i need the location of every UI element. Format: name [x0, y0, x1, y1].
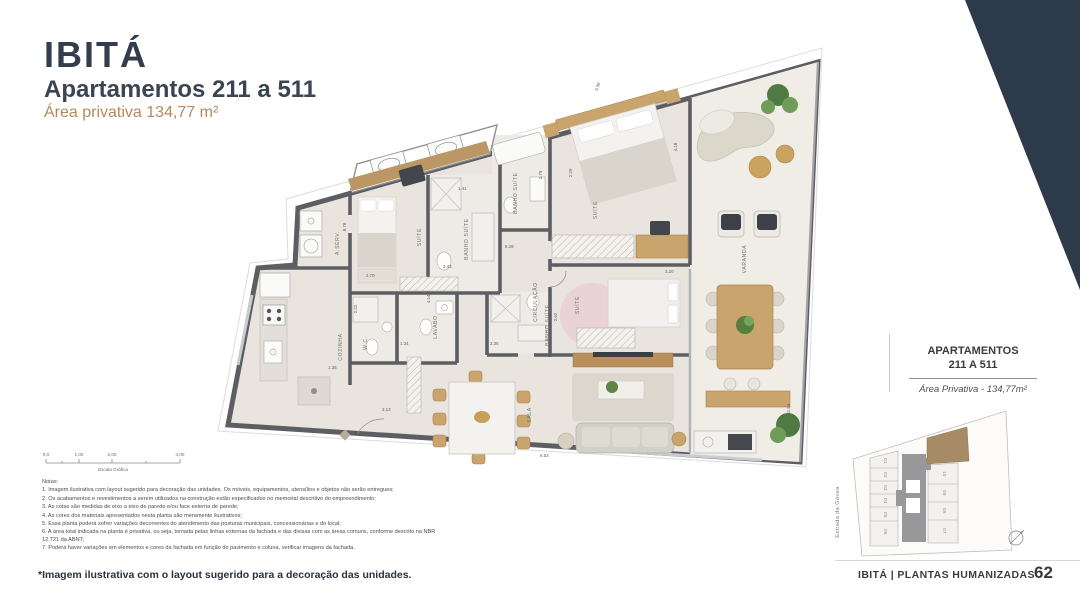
image-disclaimer: *Imagem ilustrativa com o layout sugerid…: [38, 569, 411, 581]
dim-3-20: 3.20: [665, 269, 674, 274]
label-banho-suite1: BANHO SUÍTE: [463, 218, 470, 260]
panel-rule: [909, 378, 1037, 379]
footer-divider: [835, 560, 1080, 561]
label-circulacao: CIRCULAÇÃO: [532, 282, 539, 322]
varanda-dining: [706, 285, 784, 369]
scale-tick-2: 2,00: [108, 452, 117, 457]
label-suite2: SUÍTE: [592, 201, 599, 219]
note-item-3: 3. As cotas são medidas de eixo a eixo d…: [42, 504, 450, 511]
panel-title-line2: 211 A 511: [898, 358, 1048, 372]
label-wc: W.C.: [363, 336, 369, 350]
unit-label-06: 06: [883, 529, 888, 535]
unit-label-01: 01: [883, 458, 888, 464]
note-item-1: 1. Imagem ilustrativa com layout sugerid…: [42, 487, 450, 494]
dim-2-29: 2.29: [568, 168, 573, 177]
dim-11-54: 11.54: [786, 403, 791, 414]
core-elevator-1: [906, 480, 920, 493]
corner-triangle-decoration: [965, 0, 1080, 290]
key-plan: Estrada da Gávea 01 02 03 04 05: [830, 398, 1042, 560]
notes-block: Notas: 1. Imagem ilustrativa com layout …: [42, 479, 450, 553]
dim-2-70: 2.70: [366, 273, 375, 278]
dim-2-43: 2.43: [443, 264, 452, 269]
unit-label-10: 10: [942, 471, 947, 477]
dim-4-14: 4.14: [426, 294, 431, 303]
label-banho-suite2: BANHO SUÍTE: [512, 172, 519, 214]
sala-furniture: [558, 352, 686, 453]
unit-label-02: 02: [883, 472, 888, 478]
note-item-2: 2. Os acabamentos e revestimentos a sere…: [42, 496, 450, 503]
unit-label-04: 04: [883, 498, 888, 504]
label-lavabo: LAVABO: [433, 315, 439, 338]
footer-brandline: IBITÁ | PLANTAS HUMANIZADAS: [858, 569, 1035, 581]
suite2-desk: [636, 235, 688, 258]
label-suite1: SUÍTE: [416, 228, 423, 246]
dim-4-27: 4.27: [552, 263, 561, 268]
label-suite3: SUÍTE: [574, 296, 581, 314]
unit-label-03: 03: [883, 485, 888, 491]
scale-tick-1: 1,00: [75, 452, 84, 457]
dim-2-79: 2.79: [538, 170, 543, 179]
panel-title-line1: APARTAMENTOS: [898, 344, 1048, 358]
private-area-subtitle: Área privativa 134,77 m²: [44, 104, 218, 122]
label-aserv: A.SERV.: [335, 231, 341, 255]
scale-bar: 0,0 1,00 2,00 4,00 Escala Gráfica: [42, 450, 192, 474]
floor-plan: A.SERV. SUÍTE BANHO SUÍTE BANHO SUÍTE CI…: [200, 25, 825, 470]
unit-label-07: 07: [942, 528, 947, 534]
scale-tick-4: 4,00: [176, 452, 185, 457]
panel-divider: [889, 334, 890, 392]
dim-3-36: 3.36: [594, 81, 601, 91]
dim-1-36: 1.36: [328, 365, 337, 370]
dim-1-41: 1.41: [458, 186, 467, 191]
label-varanda: VARANDA: [742, 245, 748, 274]
note-item-4: 4. As cores dos materiais apresentados n…: [42, 513, 450, 520]
grill: [694, 431, 756, 453]
dim-2-22: 2.22: [353, 304, 358, 313]
core-elevator-2: [906, 498, 920, 513]
street-label: Estrada da Gávea: [835, 486, 841, 538]
unit-info-panel: APARTAMENTOS 211 A 511 Área Privativa - …: [898, 344, 1048, 395]
suite2-wardrobe: [552, 235, 634, 258]
dim-4-18: 4.18: [673, 142, 678, 151]
label-banho-suite3: BANHO SUÍTE: [544, 304, 551, 346]
dim-2-36: 2.36: [490, 341, 499, 346]
suite2-chair: [650, 221, 670, 235]
dim-1-34: 1.34: [400, 341, 409, 346]
page-number: 62: [1034, 563, 1053, 583]
notes-title: Notas:: [42, 479, 450, 486]
label-sala: SALA: [527, 407, 533, 423]
dim-3-13: 3.13: [382, 407, 391, 412]
dim-2-62: 2.62: [553, 312, 558, 321]
note-item-7: 7. Poderá haver variações em elementos e…: [42, 545, 450, 552]
panel-area: Área Privativa - 134,77m²: [898, 384, 1048, 395]
unit-label-05: 05: [883, 512, 888, 518]
dim-8-78: 8.78: [342, 222, 347, 231]
unit-label-08: 08: [942, 508, 947, 514]
label-cozinha: COZINHA: [338, 333, 344, 360]
unit-label-11: 11: [947, 443, 952, 448]
scale-tick-0: 0,0: [43, 452, 50, 457]
note-item-6: 6. A área total indicada na planta é pri…: [42, 529, 450, 544]
unit-label-09: 09: [942, 490, 947, 496]
brand-logo: IBITÁ: [44, 34, 148, 76]
dim-9-53: 9.53: [540, 453, 549, 458]
scale-caption: Escala Gráfica: [98, 467, 128, 472]
dim-5-29: 5.29: [505, 244, 514, 249]
sideboard: [407, 357, 421, 413]
note-item-5: 5. Essa planta poderá sofrer variações d…: [42, 521, 450, 528]
page: IBITÁ Apartamentos 211 a 511 Área privat…: [0, 0, 1080, 608]
